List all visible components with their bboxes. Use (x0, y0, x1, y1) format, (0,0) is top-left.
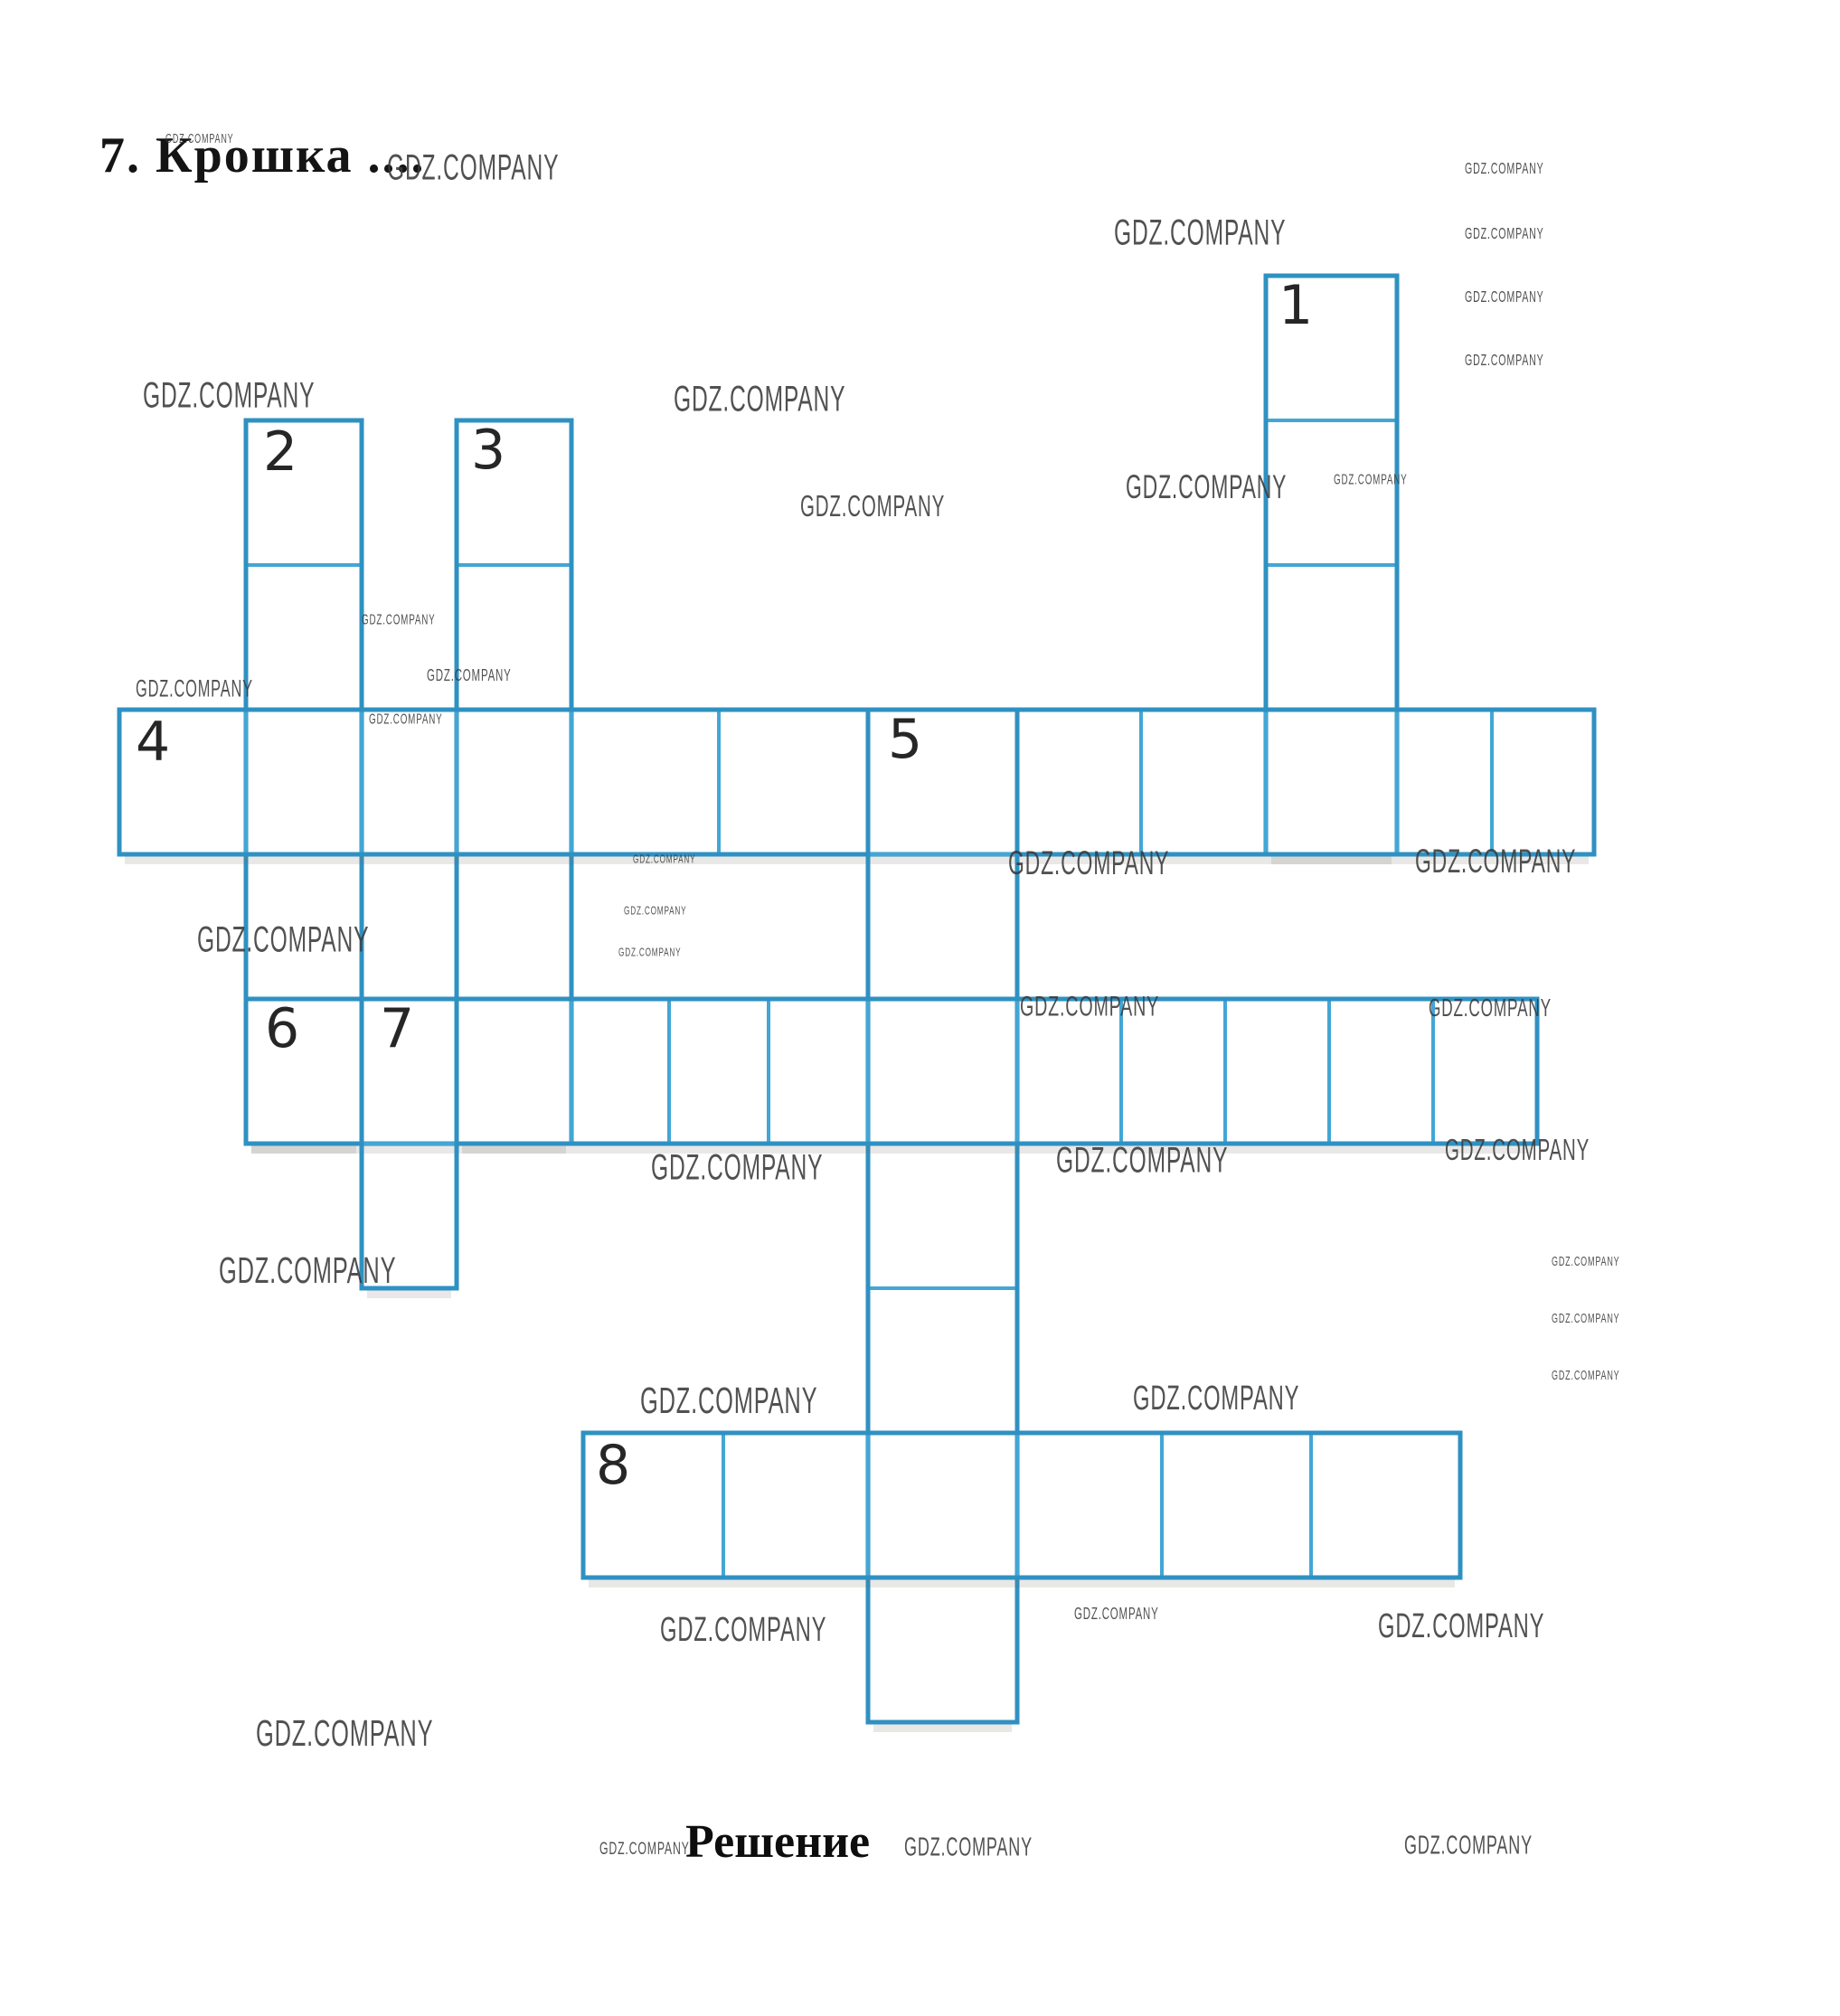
watermark-text: GDZ.COMPANY (904, 1832, 1033, 1862)
watermark-text: GDZ.COMPANY (1056, 1141, 1228, 1182)
crossword-cell (1311, 1433, 1460, 1578)
clue-number-1: 1 (1279, 278, 1313, 333)
crossword-cell (868, 1433, 1017, 1578)
crossword-cell (246, 999, 362, 1144)
crossword-cell (246, 565, 362, 710)
watermark-text: GDZ.COMPANY (1465, 159, 1544, 177)
crossword-cell (457, 565, 571, 710)
crossword-cell (868, 854, 1017, 999)
watermark-text: GDZ.COMPANY (143, 376, 315, 417)
solution-label: Решение (685, 1815, 870, 1869)
watermark-text: GDZ.COMPANY (165, 132, 234, 146)
watermark-text: GDZ.COMPANY (362, 611, 436, 627)
crossword-cell (868, 999, 1017, 1144)
watermark-text: GDZ.COMPANY (256, 1712, 433, 1756)
watermark-text: GDZ.COMPANY (800, 490, 945, 524)
clue-number-6: 6 (265, 1002, 299, 1056)
crossword-cell (457, 710, 571, 854)
crossword-cell (719, 710, 868, 854)
crossword-cell (571, 710, 719, 854)
watermark-text: GDZ.COMPANY (1133, 1380, 1299, 1419)
watermark-text: GDZ.COMPANY (387, 148, 559, 189)
watermark-text: GDZ.COMPANY (651, 1148, 823, 1189)
watermark-text: GDZ.COMPANY (1415, 843, 1576, 881)
crossword-cell (769, 999, 868, 1144)
word-8-across (583, 1433, 1460, 1587)
word-outline (583, 1433, 1460, 1578)
crossword-cell (868, 1144, 1017, 1288)
watermark-text: GDZ.COMPANY (1008, 844, 1169, 882)
watermark-text: GDZ.COMPANY (624, 905, 686, 919)
watermark-text: GDZ.COMPANY (618, 947, 681, 960)
watermark-text: GDZ.COMPANY (136, 676, 253, 703)
clue-number-4: 4 (136, 715, 170, 769)
word-4-across (119, 710, 1594, 864)
crossword-cell (669, 999, 769, 1144)
crossword-cell (1266, 710, 1397, 854)
crossword-cell (1225, 999, 1329, 1144)
crossword-cell (723, 1433, 868, 1578)
watermark-text: GDZ.COMPANY (1334, 471, 1408, 487)
crossword-cell (1162, 1433, 1311, 1578)
watermark-text: GDZ.COMPANY (427, 665, 512, 684)
clue-number-5: 5 (888, 712, 922, 767)
watermark-text: GDZ.COMPANY (1074, 1604, 1159, 1623)
word-3-down (457, 420, 571, 1154)
crossword-cell (457, 710, 571, 854)
clue-number-7: 7 (380, 1002, 414, 1056)
crossword-cell (571, 999, 669, 1144)
watermark-text: GDZ.COMPANY (369, 711, 443, 727)
clue-number-2: 2 (263, 425, 297, 479)
word-1-down (1266, 276, 1397, 864)
word-outline (457, 420, 571, 1144)
crossword-cell (868, 999, 1017, 1144)
scan-smudge (251, 1145, 1532, 1154)
watermark-text: GDZ.COMPANY (1020, 991, 1159, 1024)
crossword-cell (1266, 710, 1397, 854)
watermark-text: GDZ.COMPANY (674, 380, 845, 420)
watermark-text: GDZ.COMPANY (1126, 468, 1287, 506)
crossword-cell (1492, 710, 1594, 854)
crossword-cell (1397, 710, 1492, 854)
watermark-text: GDZ.COMPANY (1465, 224, 1544, 242)
watermark-text: GDZ.COMPANY (1552, 1369, 1620, 1383)
watermark-text: GDZ.COMPANY (1465, 287, 1544, 306)
word-2-down (246, 420, 362, 1154)
watermark-text: GDZ.COMPANY (1552, 1255, 1620, 1269)
watermark-text: GDZ.COMPANY (1378, 1607, 1544, 1647)
watermark-text: GDZ.COMPANY (1445, 1134, 1590, 1168)
crossword-cell (1141, 710, 1266, 854)
crossword-cell (457, 999, 571, 1144)
watermark-text: GDZ.COMPANY (660, 1611, 826, 1651)
crossword-cell (1017, 1433, 1162, 1578)
watermark-text: GDZ.COMPANY (633, 853, 695, 867)
crossword-cell (246, 710, 362, 854)
clue-number-8: 8 (596, 1438, 630, 1493)
word-outline (246, 420, 362, 1144)
workbook-page: 7. Крошка .... 12345678 GDZ.COMPANYGDZ.C… (0, 0, 1840, 2016)
crossword-cell (868, 1288, 1017, 1433)
word-6-across (246, 999, 1537, 1154)
crossword-cell (362, 710, 457, 854)
watermark-text: GDZ.COMPANY (1465, 351, 1544, 369)
clue-number-3: 3 (471, 423, 505, 477)
crossword-cell (457, 854, 571, 999)
crossword-cell (1329, 999, 1433, 1144)
watermark-text: GDZ.COMPANY (1404, 1830, 1533, 1861)
word-outline (246, 999, 1537, 1144)
crossword-cell (1266, 565, 1397, 710)
crossword-cell (1017, 710, 1141, 854)
watermark-text: GDZ.COMPANY (219, 1249, 396, 1293)
watermark-text: GDZ.COMPANY (599, 1839, 690, 1859)
watermark-text: GDZ.COMPANY (197, 920, 369, 961)
watermark-text: GDZ.COMPANY (1552, 1312, 1620, 1326)
scan-smudge (589, 1579, 1455, 1587)
crossword-cell (457, 999, 571, 1144)
scan-smudge (873, 1724, 1012, 1732)
watermark-text: GDZ.COMPANY (1429, 994, 1552, 1023)
watermark-text: GDZ.COMPANY (1114, 213, 1286, 254)
scan-smudge (125, 856, 1589, 864)
word-outline (119, 710, 1594, 854)
crossword-cell (868, 1578, 1017, 1722)
crossword-cell (246, 999, 362, 1144)
crossword-cell (868, 1433, 1017, 1578)
crossword-cell (246, 710, 362, 854)
watermark-text: GDZ.COMPANY (640, 1380, 817, 1423)
